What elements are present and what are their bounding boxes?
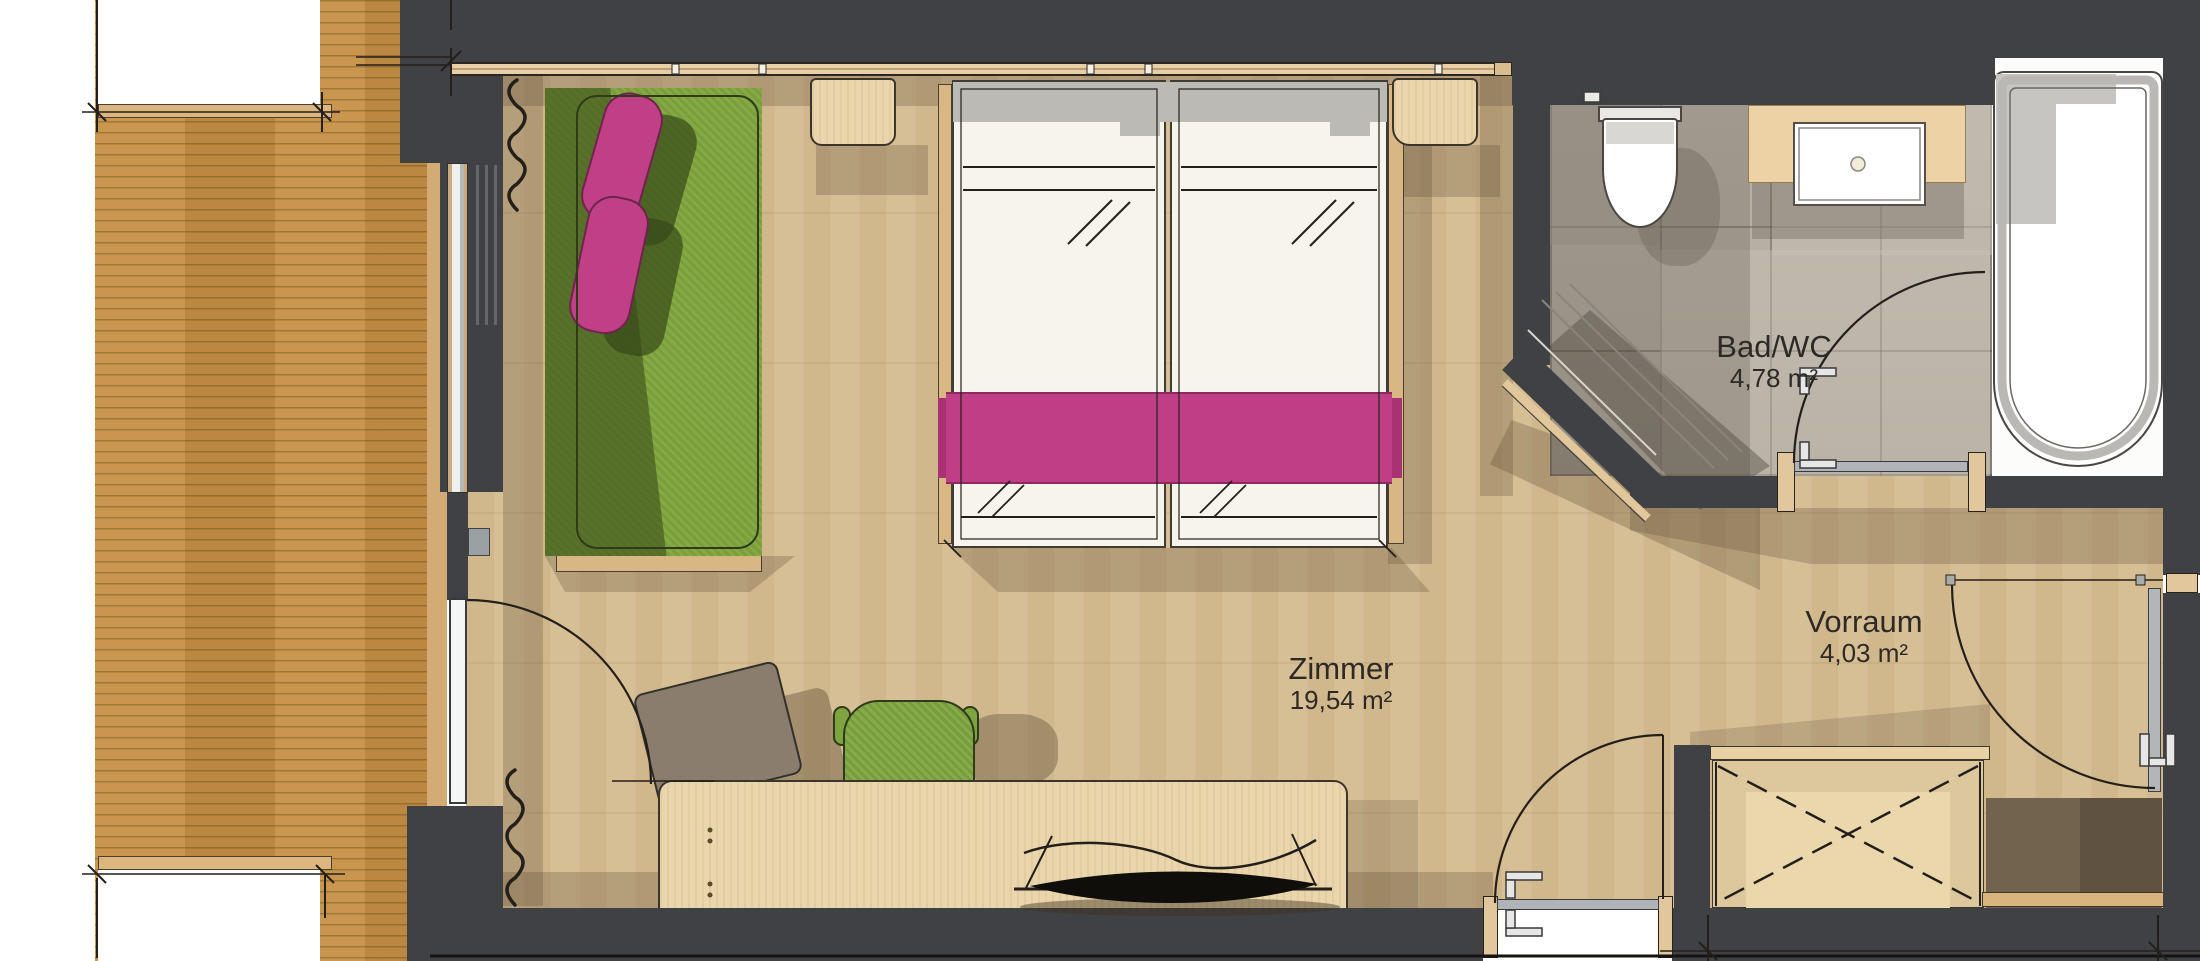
zimmer-door-jamb-right [1658, 896, 1673, 958]
bath-door-jamb-right [1968, 452, 1986, 512]
wall-stub-vorraum-door [1674, 745, 1710, 915]
radiator-lines [476, 165, 500, 325]
wall-bath-top [1512, 0, 1995, 105]
wall-right-lower [2163, 593, 2200, 961]
wardrobe-rail [1710, 746, 1990, 760]
wall-left-window-frame [447, 492, 468, 600]
headboard-shadow [1330, 120, 1370, 136]
wall-bath-south-right [1986, 476, 2163, 508]
bathtub-alcove [1992, 58, 2163, 476]
wall-bed-bath-divider [1513, 62, 1550, 365]
floor-plan-canvas: Zimmer 19,54 m² Bad/WC 4,78 m² Vorraum 4… [0, 0, 2200, 961]
room-area: 4,78 m² [1716, 364, 1831, 393]
room-name: Zimmer [1288, 652, 1393, 686]
green-stool [843, 700, 975, 782]
floor-shadow [1348, 800, 1418, 908]
entry-door-leaf [2148, 588, 2161, 792]
wall-bath-south-left [1630, 476, 1777, 508]
terrace-door-leaf [449, 598, 467, 804]
room-area: 4,03 m² [1805, 639, 1922, 668]
terrace-sill-top [98, 104, 332, 118]
wardrobe-inner [1746, 792, 1950, 908]
room-name: Vorraum [1805, 605, 1922, 639]
entry-frame-cap [2166, 573, 2198, 593]
wall-top [447, 0, 1512, 62]
wall-bottom-b [1672, 908, 2200, 961]
toilet-seat-shade [1606, 122, 1674, 144]
bath-door-leaf [1794, 461, 1968, 472]
terrace-notch-bottom [98, 870, 320, 961]
desk-sideboard [658, 780, 1348, 908]
entry-mat-strip [1982, 892, 2164, 907]
zimmer-door-leaf [1497, 899, 1659, 910]
room-name: Bad/WC [1716, 330, 1831, 364]
bath-door-jamb-left [1777, 452, 1795, 512]
headboard-shadow [1120, 120, 1160, 136]
terrace-sill-bottom [98, 856, 332, 870]
window-left-glazing [447, 163, 468, 493]
wall-tub-top [1995, 0, 2165, 58]
bed-runner [946, 392, 1392, 484]
washbasin [1793, 122, 1926, 206]
wall-left-bottom [407, 806, 503, 961]
window-band-top [452, 62, 1512, 76]
terrace-deck-floor [95, 0, 447, 961]
room-label-zimmer: Zimmer 19,54 m² [1288, 652, 1393, 715]
wall-bottom-a [490, 908, 1483, 961]
room-label-vorraum: Vorraum 4,03 m² [1805, 605, 1922, 668]
nightstand-right [1392, 78, 1478, 146]
nightstand-left [810, 78, 896, 146]
room-label-badwc: Bad/WC 4,78 m² [1716, 330, 1831, 393]
floor-shadow [950, 548, 1430, 592]
window-band-end-cap [1494, 62, 1512, 76]
wall-right-upper [2163, 0, 2200, 575]
room-area: 19,54 m² [1288, 686, 1393, 715]
zimmer-door-jamb-left [1483, 896, 1498, 958]
floor-shadow [816, 145, 928, 195]
door-closer-hardware [468, 528, 490, 556]
floor-shadow [503, 76, 543, 906]
headboard-shadow [953, 82, 1387, 122]
terrace-notch-top [98, 0, 320, 104]
